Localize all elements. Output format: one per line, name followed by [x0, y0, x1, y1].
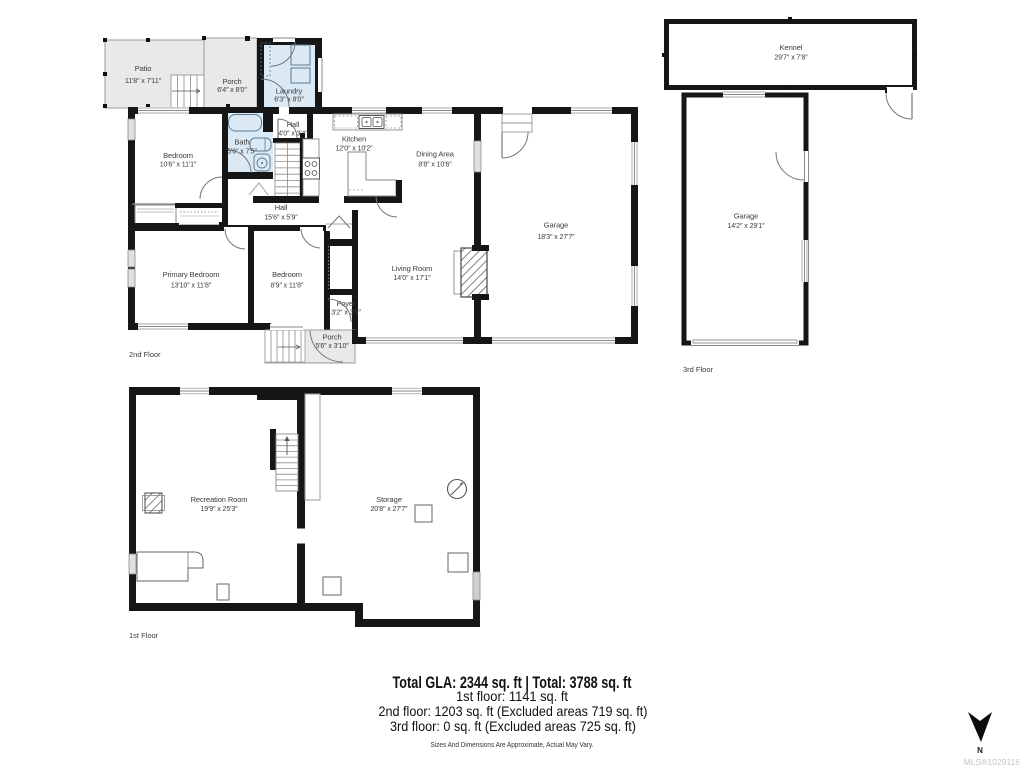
- svg-text:Dining Area: Dining Area: [416, 150, 455, 159]
- svg-text:18′3″ x 27′7″: 18′3″ x 27′7″: [537, 234, 575, 241]
- svg-text:Laundry: Laundry: [276, 87, 303, 96]
- svg-text:Bedroom: Bedroom: [163, 151, 193, 160]
- svg-text:2nd Floor: 2nd Floor: [129, 350, 161, 359]
- svg-text:14′2″ x 29′1″: 14′2″ x 29′1″: [727, 223, 765, 230]
- svg-text:Storage: Storage: [376, 495, 402, 504]
- svg-text:10′6″ x 11′1″: 10′6″ x 11′1″: [160, 162, 197, 169]
- svg-text:20′8″ x 27′7″: 20′8″ x 27′7″: [370, 506, 408, 513]
- svg-text:Kennel: Kennel: [780, 43, 803, 52]
- svg-text:13′10″ x 11′8″: 13′10″ x 11′8″: [171, 283, 212, 290]
- svg-text:3rd Floor: 3rd Floor: [683, 365, 714, 374]
- svg-text:15′6″ x 5′9″: 15′6″ x 5′9″: [264, 215, 298, 222]
- svg-text:Garage: Garage: [734, 212, 758, 221]
- svg-text:1st floor: 1141 sq. ft: 1st floor: 1141 sq. ft: [456, 688, 568, 704]
- svg-text:Hall: Hall: [287, 120, 300, 129]
- svg-text:1st Floor: 1st Floor: [129, 631, 159, 640]
- svg-text:5′6″ x 3′10″: 5′6″ x 3′10″: [315, 343, 349, 350]
- svg-text:Hall: Hall: [275, 203, 288, 212]
- svg-text:12′0″ x 10′2″: 12′0″ x 10′2″: [335, 146, 373, 153]
- svg-text:MLS®1029116: MLS®1029116: [964, 757, 1020, 767]
- svg-text:Foyer: Foyer: [337, 299, 356, 308]
- svg-text:Sizes And Dimensions Are Appro: Sizes And Dimensions Are Approximate, Ac…: [431, 740, 594, 749]
- svg-text:Porch: Porch: [322, 333, 341, 342]
- svg-text:5′6″ x 7′5″: 5′6″ x 7′5″: [227, 149, 257, 156]
- svg-text:29′7″ x 7′8″: 29′7″ x 7′8″: [774, 55, 808, 62]
- svg-text:Porch: Porch: [222, 77, 241, 86]
- svg-text:Living Room: Living Room: [392, 264, 433, 273]
- svg-text:19′9″ x 25′3″: 19′9″ x 25′3″: [200, 506, 238, 513]
- svg-text:2nd floor: 1203 sq. ft (Exclud: 2nd floor: 1203 sq. ft (Excluded areas 7…: [379, 703, 648, 719]
- svg-text:Primary Bedroom: Primary Bedroom: [163, 270, 220, 279]
- svg-text:8′8″ x 10′6″: 8′8″ x 10′6″: [418, 162, 452, 169]
- svg-text:Garage: Garage: [544, 221, 568, 230]
- svg-text:6′4″ x 8′0″: 6′4″ x 8′0″: [217, 87, 247, 94]
- svg-text:3rd floor: 0 sq. ft (Excluded: 3rd floor: 0 sq. ft (Excluded areas 725 …: [390, 718, 636, 734]
- svg-text:Kitchen: Kitchen: [342, 135, 366, 144]
- svg-text:11′8″ x 7′11″: 11′8″ x 7′11″: [125, 78, 162, 85]
- svg-text:14′0″ x 17′1″: 14′0″ x 17′1″: [393, 275, 431, 282]
- svg-text:Patio: Patio: [135, 64, 152, 73]
- svg-text:Bedroom: Bedroom: [272, 270, 302, 279]
- svg-text:N: N: [977, 746, 983, 755]
- svg-text:6′3″ x 8′0″: 6′3″ x 8′0″: [274, 97, 304, 104]
- svg-text:3′2″ x 3′9″: 3′2″ x 3′9″: [331, 310, 361, 317]
- svg-text:Recreation Room: Recreation Room: [191, 495, 248, 504]
- svg-text:8′9″ x 11′8″: 8′9″ x 11′8″: [271, 283, 304, 290]
- svg-text:Bath: Bath: [234, 138, 249, 147]
